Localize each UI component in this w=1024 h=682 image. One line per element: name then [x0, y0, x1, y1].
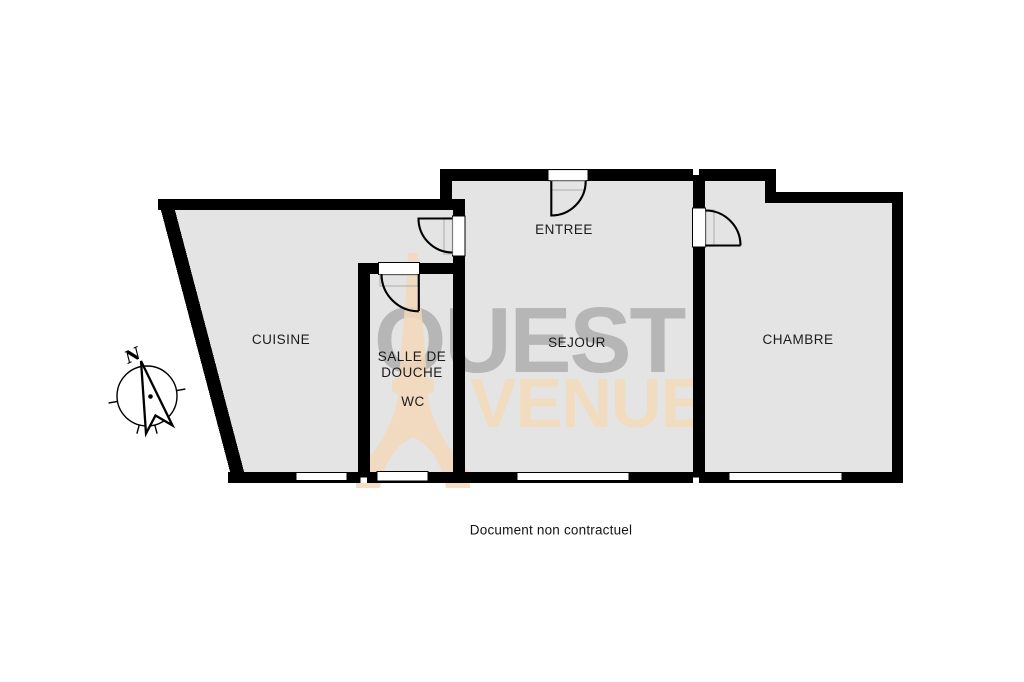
room-label-wc: WC	[401, 394, 425, 410]
door-arc	[706, 211, 741, 246]
floorplan-page: OUEST VENUE	[0, 0, 1024, 682]
compass-rose-icon	[109, 361, 186, 434]
room-label-cuisine: CUISINE	[252, 332, 310, 348]
wall-gaps	[361, 169, 700, 483]
walls	[158, 169, 903, 483]
room-label-sejour: SEJOUR	[548, 335, 606, 351]
door-opening	[453, 216, 466, 256]
wall	[892, 192, 903, 483]
window	[729, 473, 842, 481]
room-label-salle-de-douche: SALLE DE DOUCHE	[378, 349, 447, 381]
wall	[440, 169, 775, 181]
windows	[296, 472, 842, 482]
wall	[358, 263, 370, 483]
wall	[765, 192, 903, 203]
door-opening	[548, 170, 588, 181]
door-arc	[382, 274, 419, 311]
floorplan-structure	[0, 0, 1024, 682]
compass-needle	[141, 361, 173, 434]
wall	[158, 199, 247, 483]
disclaimer-text: Document non contractuel	[470, 523, 632, 538]
door-arc	[551, 181, 585, 216]
window	[377, 472, 428, 482]
door-opening	[693, 208, 706, 247]
room-label-chambre: CHAMBRE	[762, 332, 833, 348]
door-arc	[419, 219, 453, 253]
door-opening	[379, 263, 420, 275]
wall	[158, 199, 464, 210]
window	[517, 473, 629, 481]
window	[296, 473, 347, 481]
room-label-entree: ENTREE	[535, 222, 593, 238]
